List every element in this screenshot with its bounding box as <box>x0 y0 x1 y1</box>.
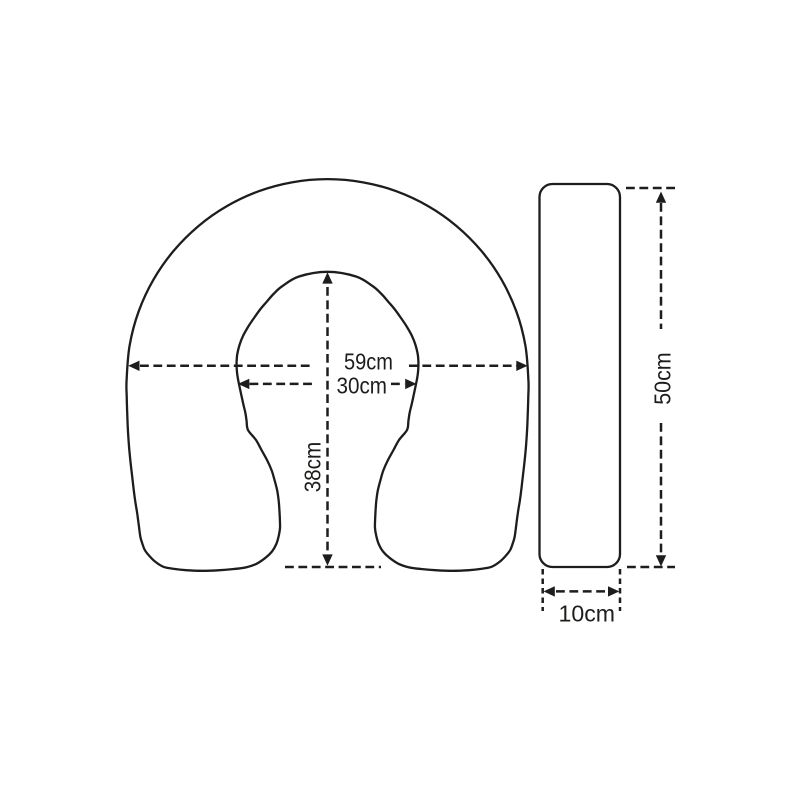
svg-text:38cm: 38cm <box>300 442 326 493</box>
svg-text:30cm: 30cm <box>337 372 388 398</box>
svg-text:59cm: 59cm <box>344 349 393 375</box>
svg-text:10cm: 10cm <box>559 600 616 626</box>
svg-text:50cm: 50cm <box>649 352 675 405</box>
